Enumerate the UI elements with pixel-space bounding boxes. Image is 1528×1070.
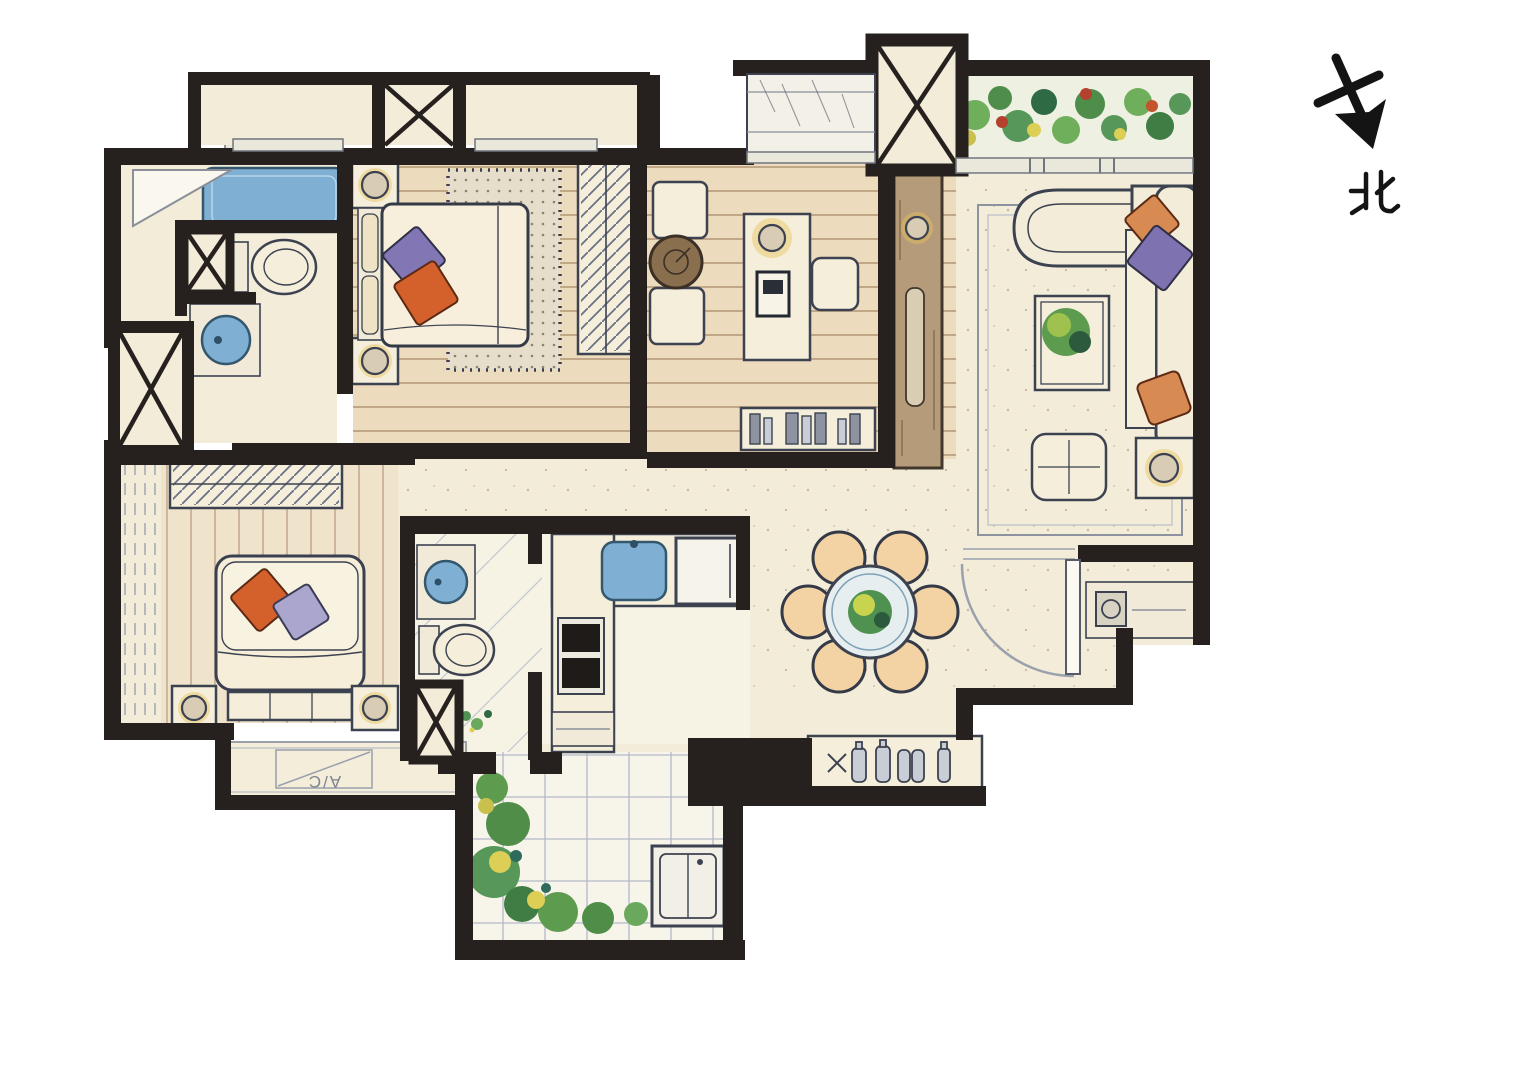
lounge-chair	[650, 288, 704, 344]
burner	[562, 624, 600, 652]
living-window-band	[956, 158, 1193, 173]
sink-drain	[435, 579, 442, 586]
centerpiece-highlight	[853, 594, 875, 616]
toilet-bowl	[252, 240, 316, 294]
lounge-chair	[653, 182, 707, 238]
door-threshold	[963, 548, 1075, 560]
desk-lamp	[759, 225, 785, 251]
bathroom-sink	[202, 316, 250, 364]
floor-plan-page: A/C	[0, 0, 1528, 1070]
compass: 北	[1318, 58, 1399, 220]
console-lamp	[906, 217, 928, 239]
floor-lamp	[1150, 454, 1178, 482]
table-plant-shadow	[1069, 331, 1091, 353]
ledge-panel	[466, 85, 637, 145]
study-window	[747, 74, 875, 163]
shaft-column	[114, 327, 188, 451]
centerpiece-shadow	[874, 612, 890, 628]
ac-label: A/C	[307, 772, 341, 791]
faucet	[630, 540, 638, 548]
laptop-screen	[763, 280, 783, 294]
exterior-notch	[1133, 645, 1210, 705]
tv-console	[894, 172, 942, 468]
desk-chair	[812, 258, 858, 310]
door-leaf	[1066, 560, 1080, 674]
shaft-column	[184, 230, 230, 294]
shaft-column	[385, 85, 453, 145]
table-lamp	[362, 172, 388, 198]
sofa-chaise	[1014, 190, 1132, 266]
burner	[562, 658, 600, 688]
shaft-column	[413, 684, 459, 760]
headboard-cushion	[362, 276, 378, 334]
foot-bench	[228, 692, 352, 720]
shaft-column	[872, 40, 962, 170]
sideboard	[808, 736, 982, 790]
kitchen-sink	[602, 542, 666, 600]
table-lamp	[362, 348, 388, 374]
washer-knob	[697, 859, 703, 865]
master-bedroom	[352, 150, 634, 384]
table-lamp	[363, 696, 387, 720]
bathroom2-sink	[425, 561, 467, 603]
table-lamp	[182, 696, 206, 720]
bedroom2-side-strip-texture	[121, 458, 161, 724]
sideboard-cabinet	[808, 736, 982, 790]
console-groove	[906, 288, 924, 406]
table-plant-highlight	[1047, 313, 1071, 337]
sink-drain	[214, 336, 222, 344]
window-sill	[475, 139, 597, 151]
ledge-panel	[201, 85, 372, 145]
window-sill	[233, 139, 343, 151]
entry-decor-box	[1096, 592, 1126, 626]
toilet-bowl	[434, 625, 494, 675]
headboard-cushion	[362, 214, 378, 272]
floor-plan-drawing: A/C	[0, 0, 1528, 1070]
entry-console	[1086, 582, 1194, 638]
